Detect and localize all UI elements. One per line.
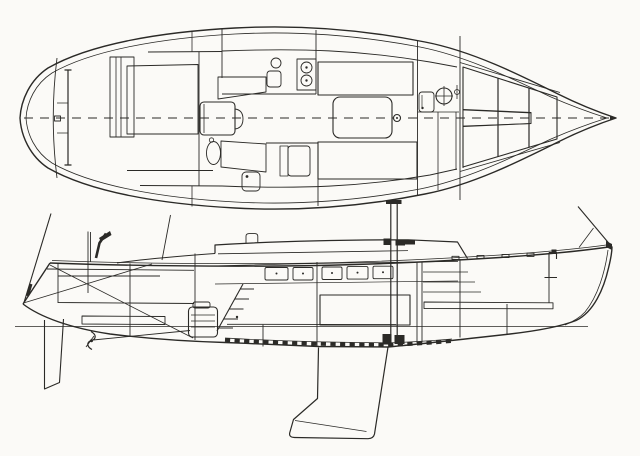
companionway-dodger <box>235 109 243 129</box>
settee-starboard <box>318 62 413 95</box>
v-berth-front <box>424 302 553 309</box>
port-sink <box>242 172 260 191</box>
toilet-pump <box>455 85 460 99</box>
handrail <box>218 251 408 254</box>
forestay <box>578 207 612 248</box>
boom-stub <box>402 240 415 245</box>
saloon-table <box>333 97 392 138</box>
mainsheet-traveler <box>65 70 72 165</box>
fin-keel <box>290 347 388 439</box>
antenna <box>162 215 171 260</box>
galley-grating <box>218 77 266 99</box>
masthead-cut <box>386 200 402 204</box>
rigging <box>24 207 612 303</box>
stemhead-fitting <box>606 241 612 250</box>
berth-cushion <box>207 142 221 165</box>
head-sink <box>419 92 434 112</box>
prop-shaft <box>93 331 190 341</box>
sailboat-ga-drawing <box>0 0 640 456</box>
quarter-berth-port <box>207 138 319 206</box>
lazarette-hatch <box>110 57 134 137</box>
galley-stove <box>297 59 316 90</box>
berth-slats <box>221 141 266 172</box>
saloon <box>318 62 417 179</box>
cabin-windows <box>265 266 393 280</box>
gooseneck <box>384 239 392 246</box>
galley-basin <box>267 71 281 87</box>
settee-port <box>318 142 417 179</box>
plan-view <box>20 27 617 209</box>
toilet <box>435 86 453 106</box>
tiller-fitting <box>55 116 61 121</box>
v-berth <box>460 63 560 172</box>
profile-bulkheads <box>317 257 549 346</box>
transom <box>23 263 50 304</box>
cockpit-coaming <box>117 254 215 264</box>
bow-stem-mark <box>610 116 617 121</box>
cockpit-grating <box>127 65 198 135</box>
engine <box>189 302 218 337</box>
mast-section <box>394 115 401 122</box>
rudder <box>45 319 64 389</box>
cockpit-coaming-lines <box>127 31 222 207</box>
cabin-side-starboard <box>222 50 457 67</box>
drawing-sheet <box>0 0 640 456</box>
companionway-hatch <box>200 102 243 135</box>
settee-front-slats <box>320 295 410 325</box>
galley-starboard <box>218 30 316 99</box>
mast-step <box>383 334 392 345</box>
galley-sink <box>271 58 281 68</box>
forepeak-shelves <box>423 272 481 292</box>
icebox <box>288 146 310 176</box>
companionway-hood <box>246 234 258 243</box>
profile-view <box>15 200 612 439</box>
